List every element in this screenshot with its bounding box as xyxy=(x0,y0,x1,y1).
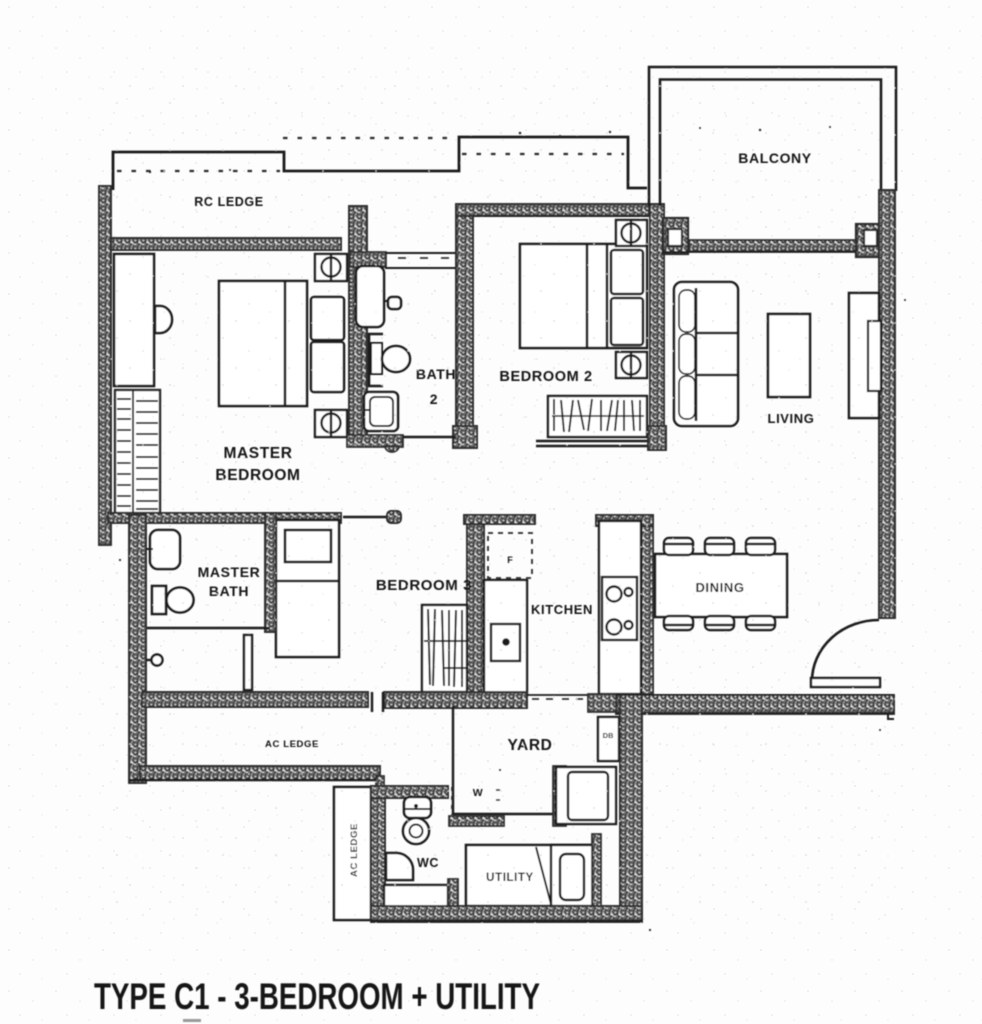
svg-text:TYPE C1 - 3-BEDROOM + UTILITY: TYPE C1 - 3-BEDROOM + UTILITY xyxy=(94,976,540,1017)
